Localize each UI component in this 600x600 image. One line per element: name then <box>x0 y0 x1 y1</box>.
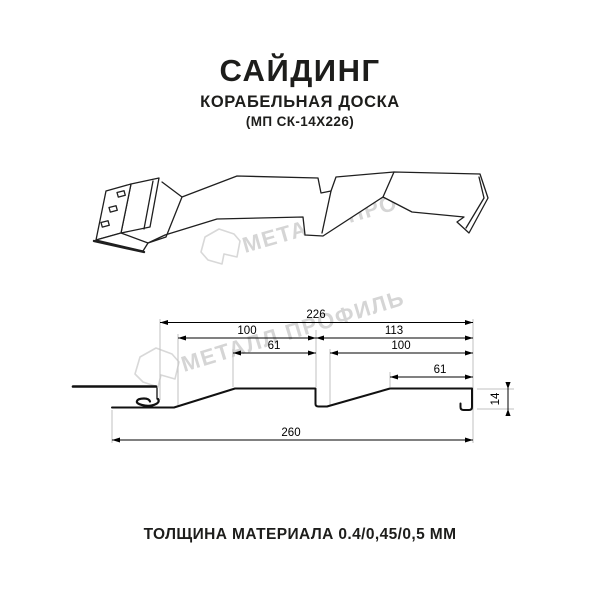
drawing-canvas: МЕТАЛЛ ПРОФИЛЬ МЕТАЛЛ ПРОФИЛЬ <box>0 0 600 600</box>
metall-profil-logo-icon <box>135 348 179 387</box>
watermark-text: МЕТАЛЛ ПРОФИЛЬ <box>178 285 408 377</box>
thickness-note: ТОЛЩИНА МАТЕРИАЛА 0.4/0,45/0,5 ММ <box>0 526 600 544</box>
section-profile-outline <box>73 387 472 411</box>
metall-profil-logo-icon <box>201 229 240 264</box>
dim-100-left-label: 100 <box>237 325 256 337</box>
dim-260-label: 260 <box>281 427 300 439</box>
dim-100-right-label: 100 <box>391 340 410 352</box>
dim-61-right-label: 61 <box>434 364 447 376</box>
dim-113-label: 113 <box>385 325 403 337</box>
watermark-bottom: МЕТАЛЛ ПРОФИЛЬ <box>135 285 408 387</box>
dim-226-label: 226 <box>306 309 325 321</box>
product-diagram-page: САЙДИНГ КОРАБЕЛЬНАЯ ДОСКА (МП СК-14Х226)… <box>0 0 600 600</box>
dimension-lines <box>112 323 508 441</box>
dim-14-label: 14 <box>490 392 502 405</box>
dim-61-left-label: 61 <box>268 340 281 352</box>
